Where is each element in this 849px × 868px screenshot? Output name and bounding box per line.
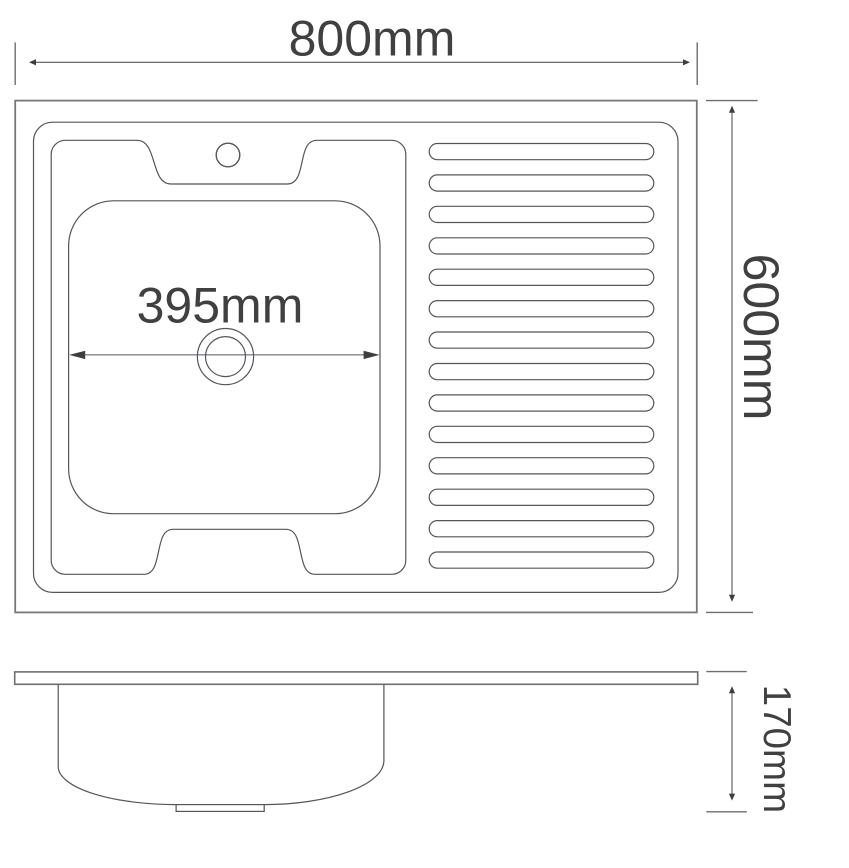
- svg-text:600mm: 600mm: [733, 254, 789, 421]
- svg-text:170mm: 170mm: [755, 685, 798, 813]
- svg-text:395mm: 395mm: [137, 278, 304, 334]
- svg-text:800mm: 800mm: [289, 11, 456, 67]
